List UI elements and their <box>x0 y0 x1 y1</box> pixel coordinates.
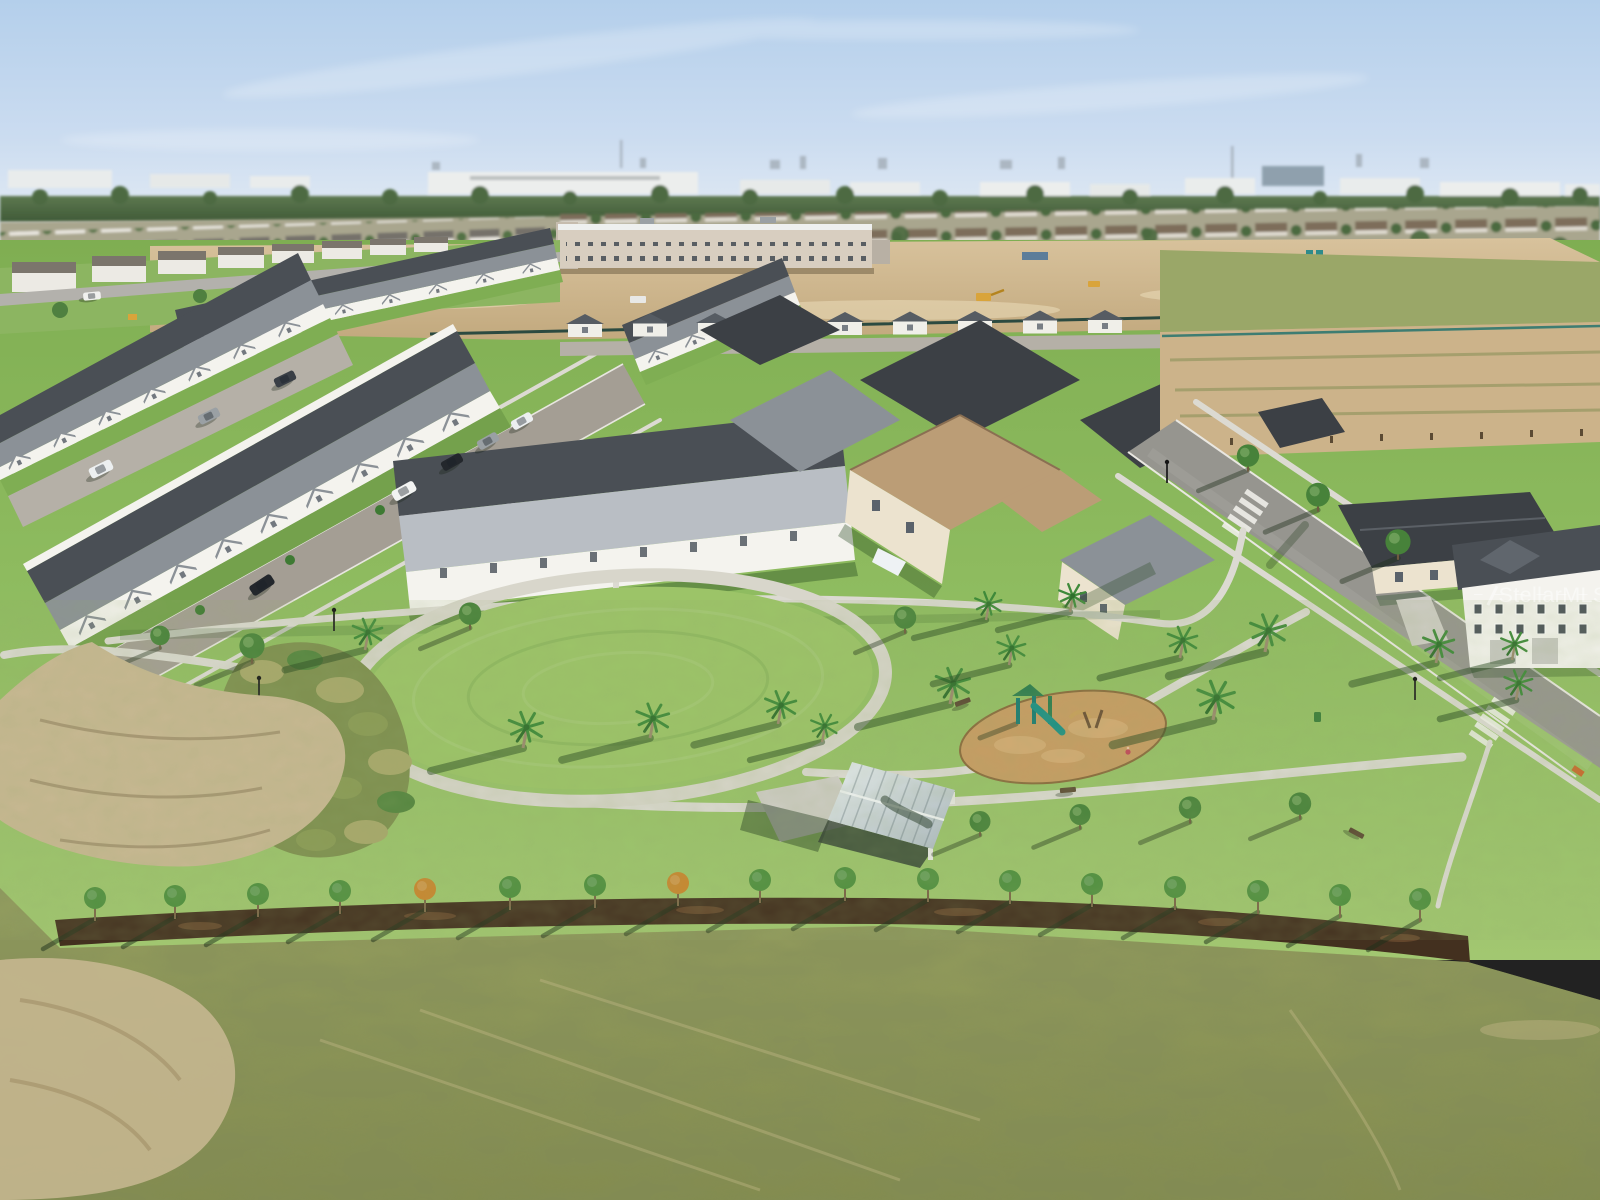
aerial-scene <box>0 0 1600 1200</box>
school-building <box>556 217 890 269</box>
aerial-photo: StellarMLS <box>0 0 1600 1200</box>
cleared-field <box>1160 250 1600 458</box>
watermark-text: StellarMLS <box>1499 585 1600 607</box>
watermark: StellarMLS <box>1491 585 1600 607</box>
back-row-homes <box>566 310 1124 337</box>
grass-texture <box>0 600 1600 940</box>
